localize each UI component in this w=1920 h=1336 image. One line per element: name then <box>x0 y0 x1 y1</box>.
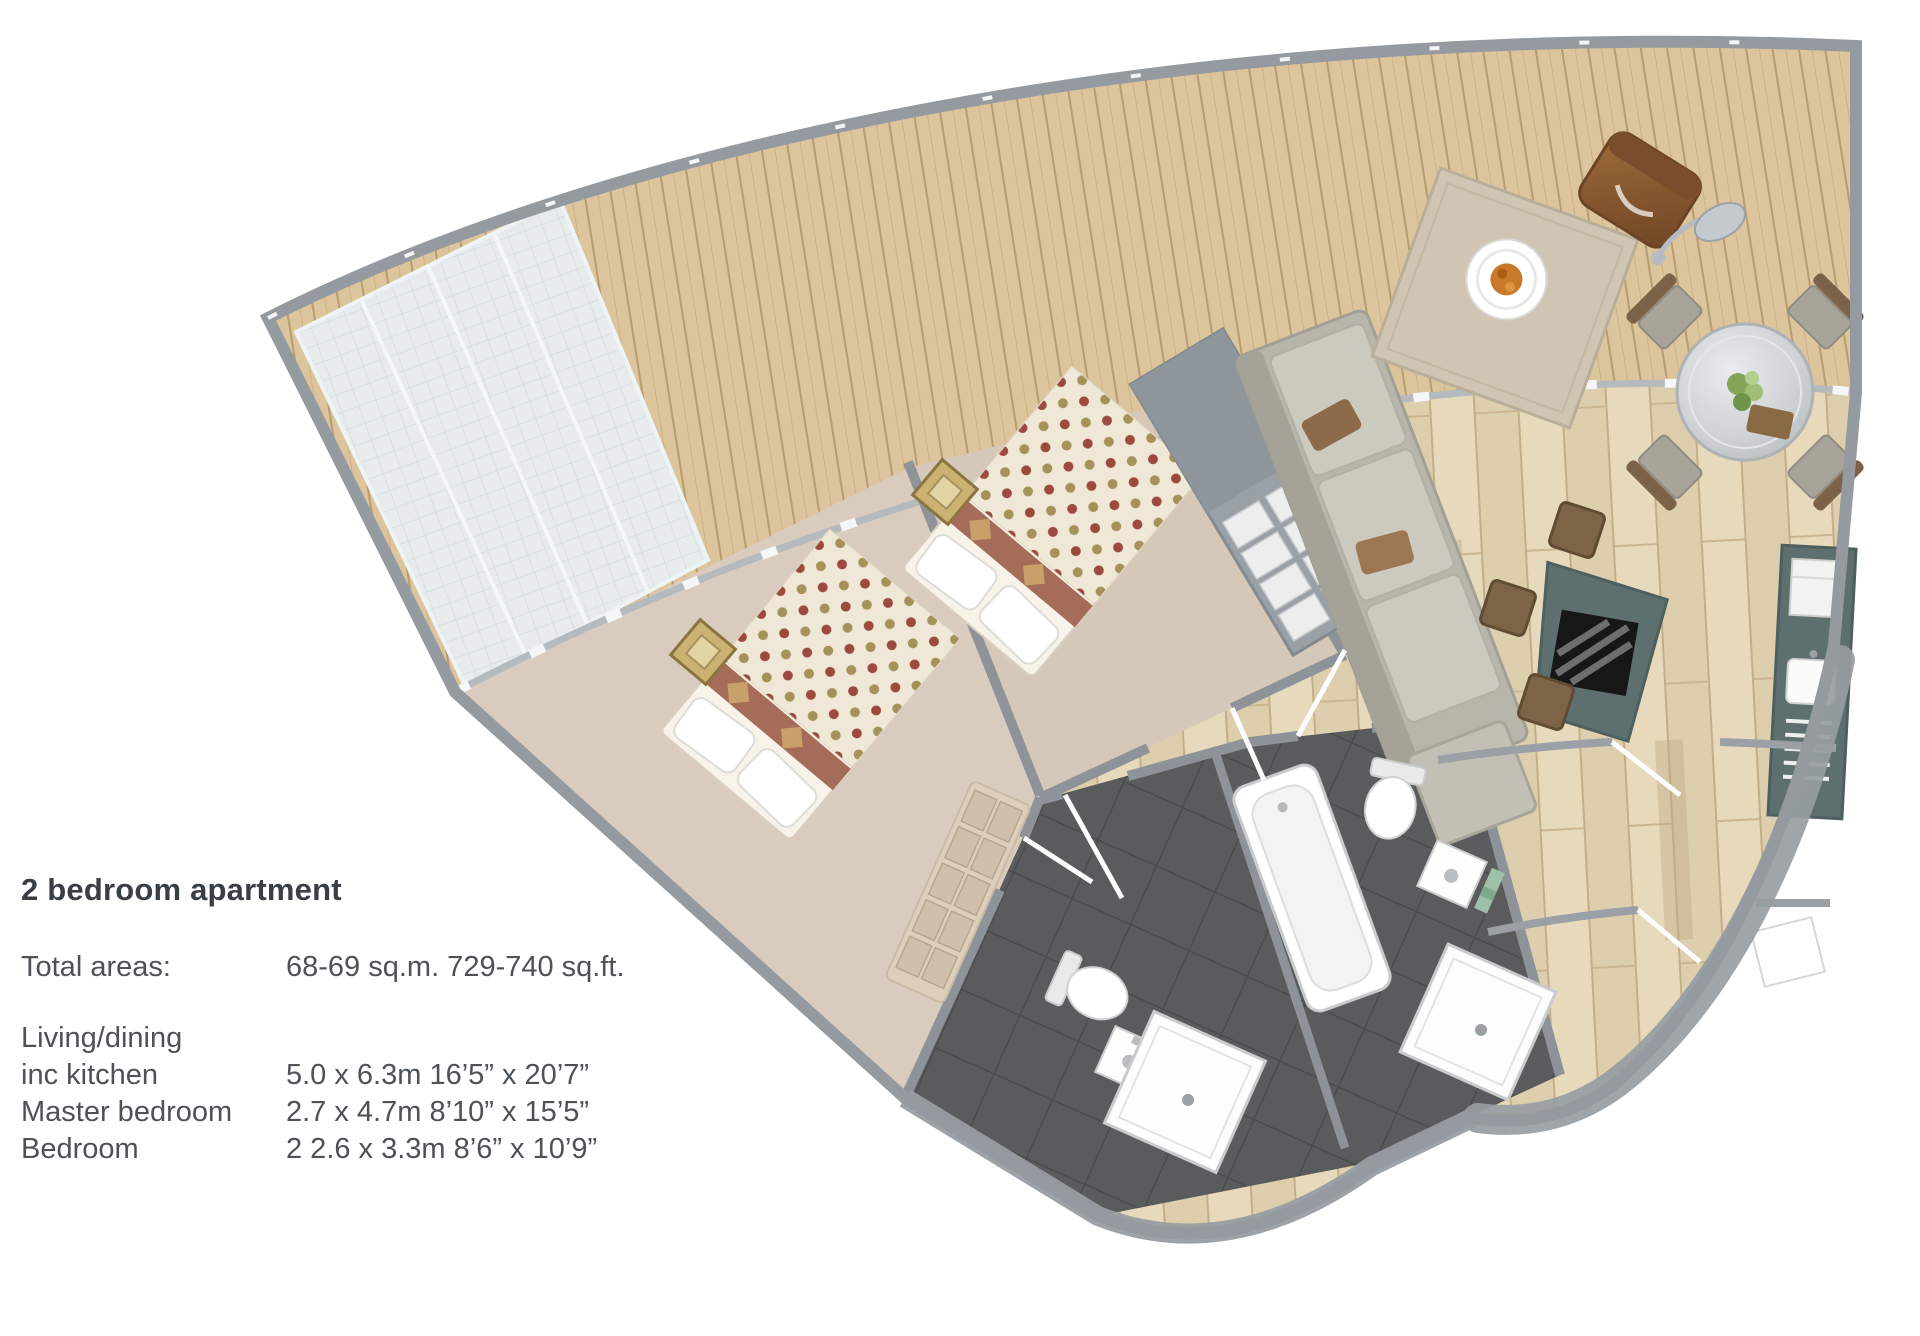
spec-panel: 2 bedroom apartment Total areas: 68-69 s… <box>21 872 781 1168</box>
room-dimension-list: Living/dining inc kitchen 5.0 x 6.3m 16’… <box>21 1020 781 1168</box>
plan-title: 2 bedroom apartment <box>21 872 781 908</box>
room-value: 2 2.6 x 3.3m 8’6” x 10’9” <box>286 1131 597 1168</box>
room-row: Master bedroom 2.7 x 4.7m 8’10” x 15’5” <box>21 1094 781 1131</box>
entry-door <box>1751 917 1825 986</box>
room-row: Bedroom 2 2.6 x 3.3m 8’6” x 10’9” <box>21 1131 781 1168</box>
room-label: Living/dining <box>21 1020 286 1057</box>
page: 2 bedroom apartment Total areas: 68-69 s… <box>0 0 1920 1336</box>
room-value: 5.0 x 6.3m 16’5” x 20’7” <box>286 1057 589 1094</box>
room-row: Living/dining <box>21 1020 781 1057</box>
room-row: inc kitchen 5.0 x 6.3m 16’5” x 20’7” <box>21 1057 781 1094</box>
total-areas-row: Total areas: 68-69 sq.m. 729-740 sq.ft. <box>21 949 781 986</box>
room-label: Master bedroom <box>21 1094 286 1131</box>
total-areas-label: Total areas: <box>21 949 286 986</box>
room-value: 2.7 x 4.7m 8’10” x 15’5” <box>286 1094 589 1131</box>
room-label: inc kitchen <box>21 1057 286 1094</box>
room-label: Bedroom <box>21 1131 286 1168</box>
total-areas-value: 68-69 sq.m. 729-740 sq.ft. <box>286 949 625 986</box>
